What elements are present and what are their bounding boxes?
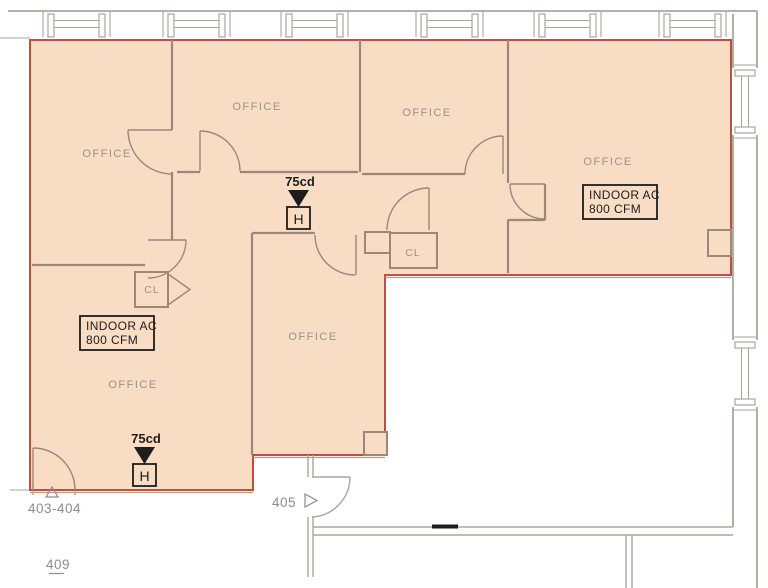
ac-callout-line2: 800 CFM — [589, 202, 641, 216]
floor-plan: OFFICE OFFICE OFFICE OFFICE OFFICE OFFIC… — [0, 0, 768, 588]
window-icon — [281, 11, 348, 37]
window-icon — [534, 11, 601, 37]
closet-label-right: CL — [405, 247, 420, 259]
room-label-office-bottom-left: OFFICE — [108, 379, 157, 391]
closet-label-left: CL — [144, 284, 159, 296]
wall-dash-marker — [432, 525, 458, 529]
door-tag-409: 409 — [46, 557, 70, 572]
corridor-lines — [308, 455, 733, 588]
ac-callout-right: INDOOR AC 800 CFM — [583, 185, 660, 219]
room-label-office-bottom-middle: OFFICE — [288, 331, 337, 343]
corridor-door-arc — [312, 477, 350, 517]
cabinet-box — [708, 230, 731, 256]
window-icon — [416, 11, 483, 37]
room-label-office-top-right: OFFICE — [402, 107, 451, 119]
corner-column-box — [364, 432, 387, 455]
windows-top-row — [43, 11, 726, 37]
ac-callout-line1: INDOOR AC — [86, 319, 157, 333]
ac-callout-left: INDOOR AC 800 CFM — [80, 316, 157, 350]
candela-label: 75cd — [285, 174, 315, 189]
door-tags: 403-404 405 409 — [28, 487, 317, 574]
window-icon — [659, 11, 726, 37]
corridor-walls — [308, 455, 733, 588]
window-icon — [43, 11, 110, 37]
ac-callout-line1: INDOOR AC — [589, 188, 660, 202]
room-label-office-top-middle: OFFICE — [232, 101, 281, 113]
horn-symbol-letter: H — [293, 211, 303, 227]
horn-symbol-letter: H — [139, 468, 149, 484]
door-tag-405: 405 — [272, 495, 296, 510]
window-icon — [733, 65, 757, 138]
shaft-box — [365, 232, 390, 253]
room-label-office-right: OFFICE — [583, 156, 632, 168]
door-marker-arrow-icon — [305, 494, 317, 507]
room-label-office-top-left: OFFICE — [82, 148, 131, 160]
window-icon — [163, 11, 230, 37]
exterior-left-stubs — [0, 38, 30, 490]
candela-label: 75cd — [131, 431, 161, 446]
window-icon — [733, 337, 757, 410]
ac-callout-line2: 800 CFM — [86, 333, 138, 347]
door-tag-403-404: 403-404 — [28, 501, 81, 516]
windows-right-column — [733, 65, 757, 410]
